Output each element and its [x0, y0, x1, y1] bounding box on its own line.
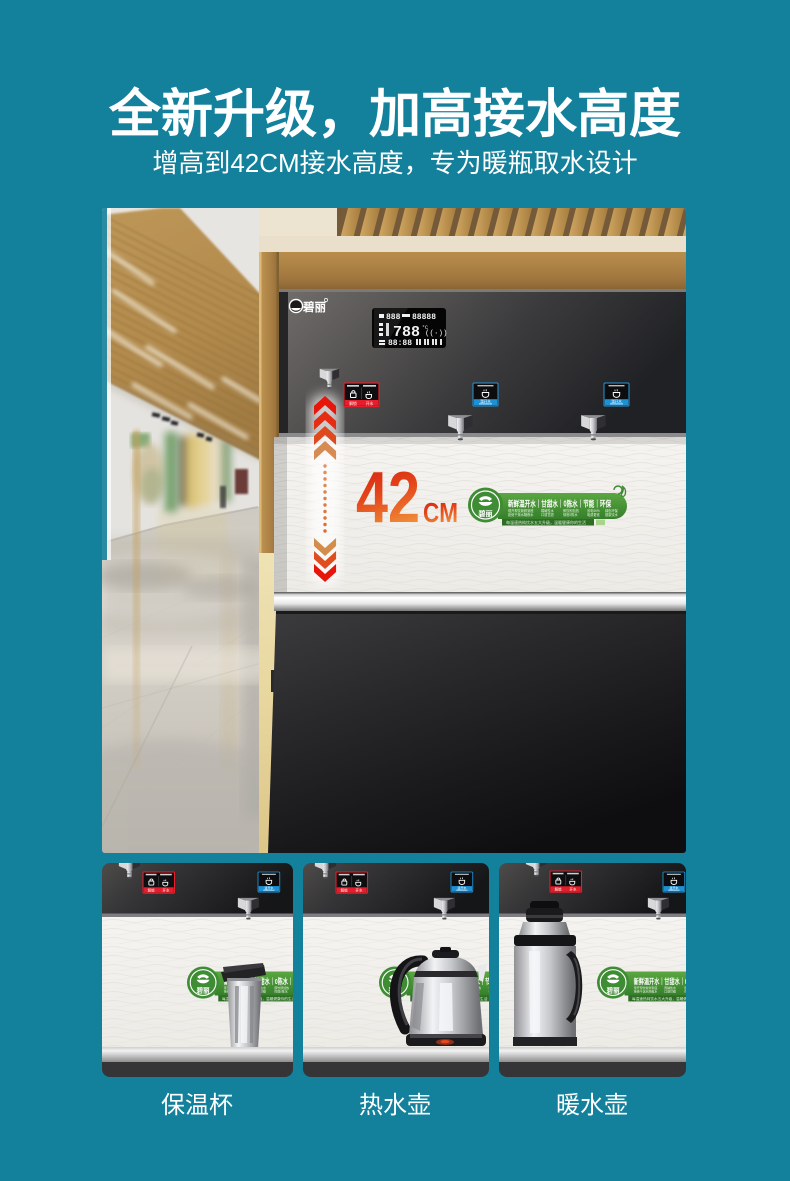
svg-text:88888: 88888 — [412, 313, 436, 322]
svg-text:888: 888 — [386, 313, 401, 322]
svg-text:((·)): ((·)) — [425, 330, 448, 338]
svg-text:CM: CM — [423, 497, 458, 528]
svg-text:42: 42 — [356, 458, 420, 538]
svg-text:88:88: 88:88 — [388, 339, 412, 348]
svg-text:碧丽: 碧丽 — [302, 300, 326, 314]
